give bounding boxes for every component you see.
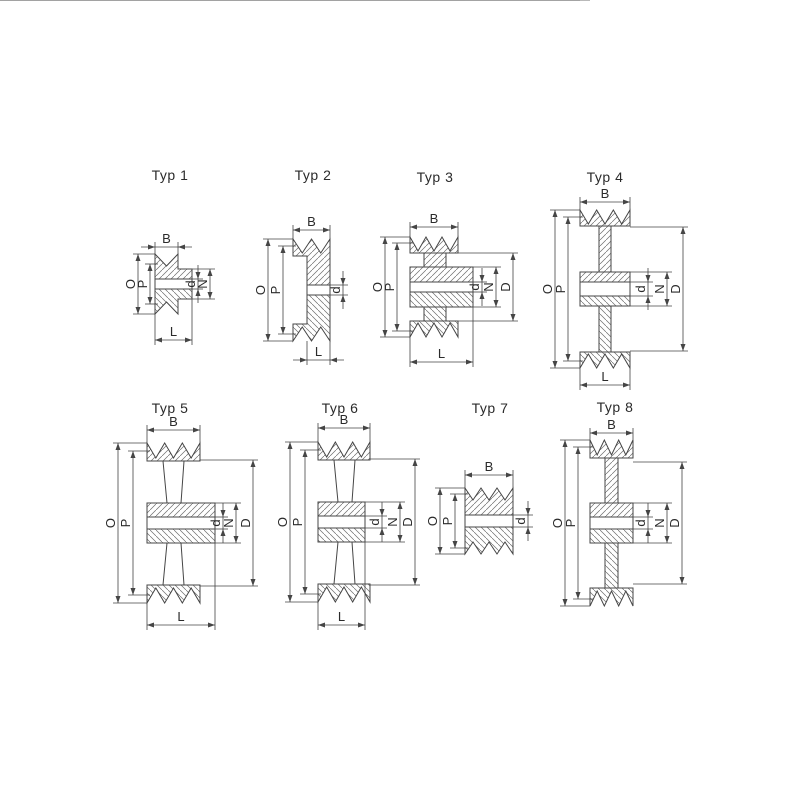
dim-label-O: O (103, 518, 118, 528)
dim-label-d: d (513, 517, 528, 524)
figure-title-typ-4: Typ 4 (587, 169, 624, 185)
pulley-diagram: BOPdNLBOPdLBOPdNDLBOPdNDLBOPdNDLBOPdNDLB… (0, 0, 800, 800)
dim-label-L: L (438, 346, 445, 361)
dim-label-B: B (307, 214, 316, 229)
dimension-N-typ-1: N (192, 269, 215, 299)
dim-label-D: D (238, 518, 253, 527)
dim-label-P: P (440, 517, 455, 526)
figure-title-typ-7: Typ 7 (472, 400, 509, 416)
dim-label-O: O (253, 285, 268, 295)
dim-label-N: N (481, 282, 496, 291)
dimension-B-typ-7: B (0, 0, 513, 488)
dimension-L-typ-2: L (293, 341, 344, 365)
dim-label-P: P (382, 283, 397, 292)
dimension-B-typ-5: B (0, 0, 200, 443)
dim-label-d: d (367, 518, 382, 525)
dim-label-N: N (652, 518, 667, 527)
dim-label-L: L (601, 369, 608, 384)
dim-label-B: B (485, 459, 494, 474)
dimension-B-typ-1: B (141, 231, 192, 254)
dim-label-d: d (633, 519, 648, 526)
dim-label-P: P (118, 519, 133, 528)
dim-label-d: d (633, 285, 648, 292)
figure-title-typ-3: Typ 3 (417, 169, 454, 185)
figure-typ-4-drawing: BOPdNDL (0, 0, 688, 390)
dim-label-L: L (177, 609, 184, 624)
dimension-d-typ-7: d (513, 501, 533, 541)
dimension-d-typ-8: d (633, 503, 653, 543)
dim-label-O: O (275, 517, 290, 527)
pulley-catalog-page: BOPdNLBOPdLBOPdNDLBOPdNDLBOPdNDLBOPdNDLB… (0, 0, 800, 800)
figure-title-typ-6: Typ 6 (322, 400, 359, 416)
dimension-d-typ-6: d (365, 502, 387, 542)
figure-typ-5-drawing: BOPdNDL (0, 0, 258, 630)
dim-label-P: P (290, 518, 305, 527)
dim-label-L: L (170, 324, 177, 339)
dim-label-D: D (668, 284, 683, 293)
dim-label-N: N (652, 284, 667, 293)
dimension-P-typ-2: P (268, 246, 296, 334)
figure-title-typ-2: Typ 2 (295, 167, 332, 183)
dimension-P-typ-8: P (563, 447, 593, 599)
dimension-d-typ-4: d (630, 268, 653, 310)
dimension-P-typ-6: P (290, 450, 321, 594)
dim-label-B: B (162, 231, 171, 246)
dimension-B-typ-2: B (0, 0, 330, 239)
dim-label-P: P (268, 286, 283, 295)
dim-label-N: N (385, 517, 400, 526)
dimension-B-typ-3: B (0, 0, 458, 237)
dimension-L-typ-3: L (0, 0, 473, 367)
dim-label-B: B (607, 417, 616, 432)
dim-label-d: d (328, 286, 343, 293)
dimension-P-typ-7: P (440, 494, 468, 548)
dim-label-L: L (338, 609, 345, 624)
figure-title-typ-5: Typ 5 (152, 400, 189, 416)
dim-label-P: P (135, 280, 150, 289)
figure-title-typ-8: Typ 8 (597, 399, 634, 415)
dimension-P-typ-4: P (553, 217, 583, 361)
dim-label-B: B (601, 186, 610, 201)
dim-label-D: D (400, 517, 415, 526)
dim-label-L: L (315, 344, 322, 359)
dim-label-B: B (169, 414, 178, 429)
dim-label-D: D (667, 518, 682, 527)
dim-label-P: P (563, 519, 578, 528)
dim-label-O: O (425, 516, 440, 526)
dimension-d-typ-2: d (328, 271, 348, 309)
figure-title-typ-1: Typ 1 (152, 167, 189, 183)
dim-label-B: B (430, 211, 439, 226)
dimension-B-typ-8: B (0, 0, 633, 440)
dim-label-N: N (195, 279, 210, 288)
dimension-P-typ-3: P (382, 243, 413, 331)
dimension-P-typ-5: P (118, 451, 150, 595)
dim-label-N: N (221, 518, 236, 527)
dim-label-d: d (467, 283, 482, 290)
dim-label-D: D (498, 282, 513, 291)
dim-label-P: P (553, 285, 568, 294)
